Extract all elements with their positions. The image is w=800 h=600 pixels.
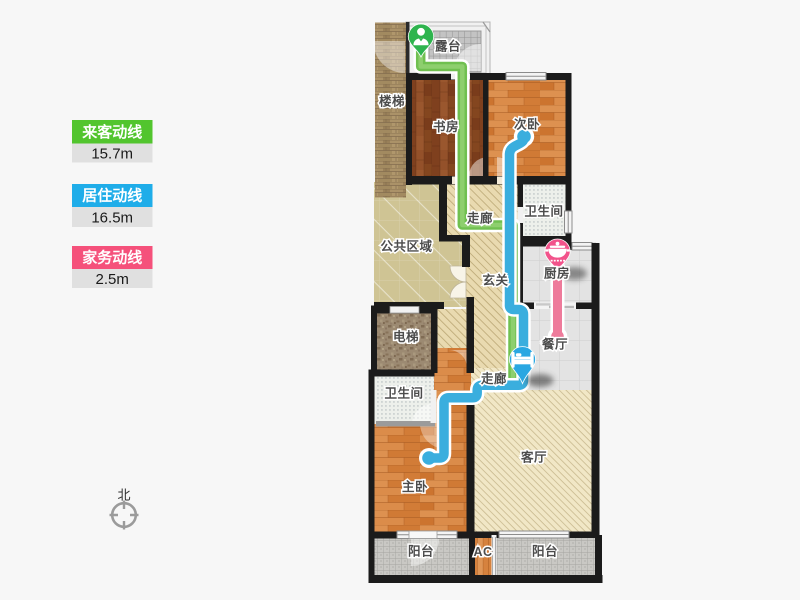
svg-text:居住动线: 居住动线	[82, 187, 142, 205]
svg-text:楼梯: 楼梯	[379, 94, 405, 109]
svg-text:AC: AC	[473, 545, 492, 559]
svg-text:次卧: 次卧	[514, 117, 540, 132]
svg-text:走廊: 走廊	[467, 211, 493, 226]
svg-text:阳台: 阳台	[408, 544, 434, 559]
svg-text:阳台: 阳台	[532, 544, 558, 559]
svg-text:电梯: 电梯	[393, 329, 419, 344]
svg-text:2.5m: 2.5m	[96, 271, 129, 288]
svg-text:公共区域: 公共区域	[380, 239, 432, 254]
svg-text:来客动线: 来客动线	[81, 123, 142, 141]
svg-text:卫生间: 卫生间	[384, 386, 423, 401]
svg-text:厨房: 厨房	[544, 266, 570, 281]
svg-text:书房: 书房	[433, 119, 459, 134]
svg-text:卫生间: 卫生间	[524, 204, 563, 219]
svg-text:露台: 露台	[435, 39, 461, 54]
svg-text:北: 北	[117, 488, 130, 503]
svg-text:16.5m: 16.5m	[91, 210, 133, 227]
svg-text:家务动线: 家务动线	[82, 249, 142, 267]
svg-text:15.7m: 15.7m	[91, 146, 133, 163]
svg-text:玄关: 玄关	[482, 273, 508, 288]
svg-text:主卧: 主卧	[402, 479, 428, 494]
svg-text:餐厅: 餐厅	[541, 337, 568, 352]
svg-text:客厅: 客厅	[520, 450, 547, 465]
svg-text:走廊: 走廊	[481, 371, 507, 386]
